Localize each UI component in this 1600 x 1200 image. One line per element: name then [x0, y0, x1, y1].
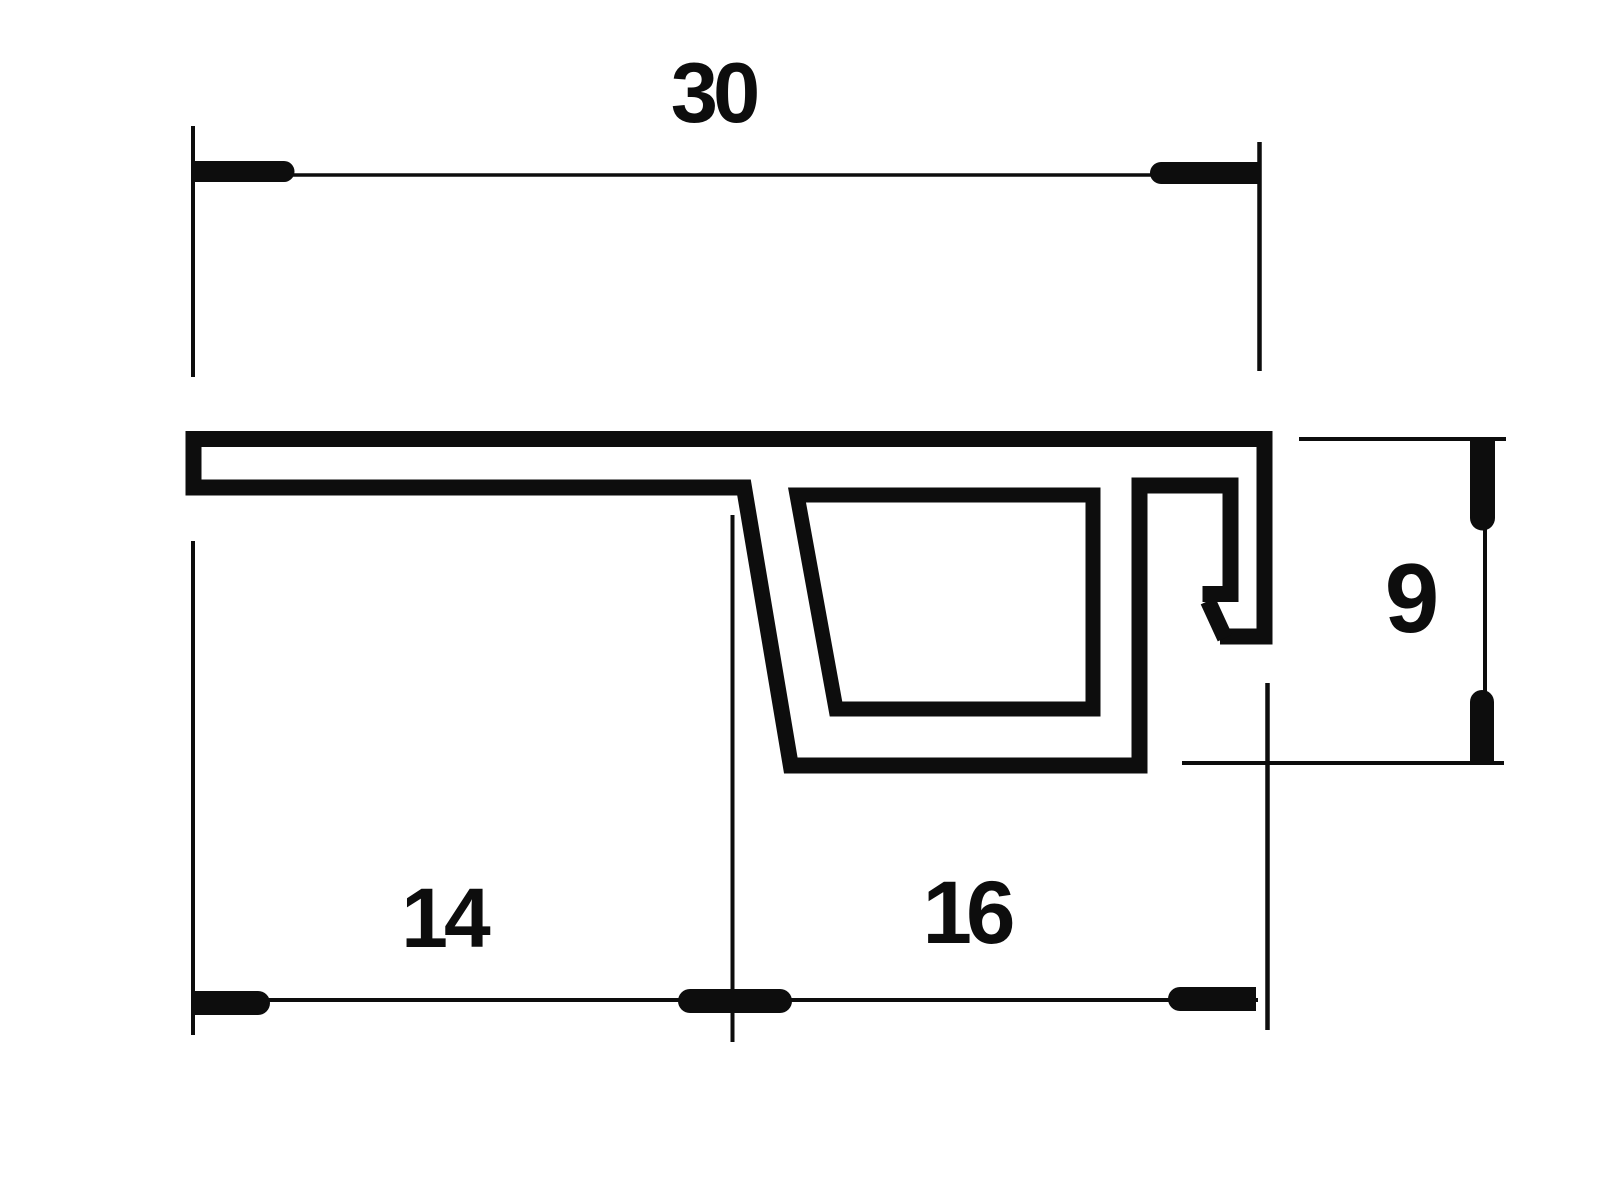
svg-text:16: 16	[923, 862, 1013, 962]
svg-text:14: 14	[401, 871, 491, 965]
svg-text:30: 30	[671, 46, 757, 141]
svg-text:9: 9	[1385, 543, 1440, 653]
